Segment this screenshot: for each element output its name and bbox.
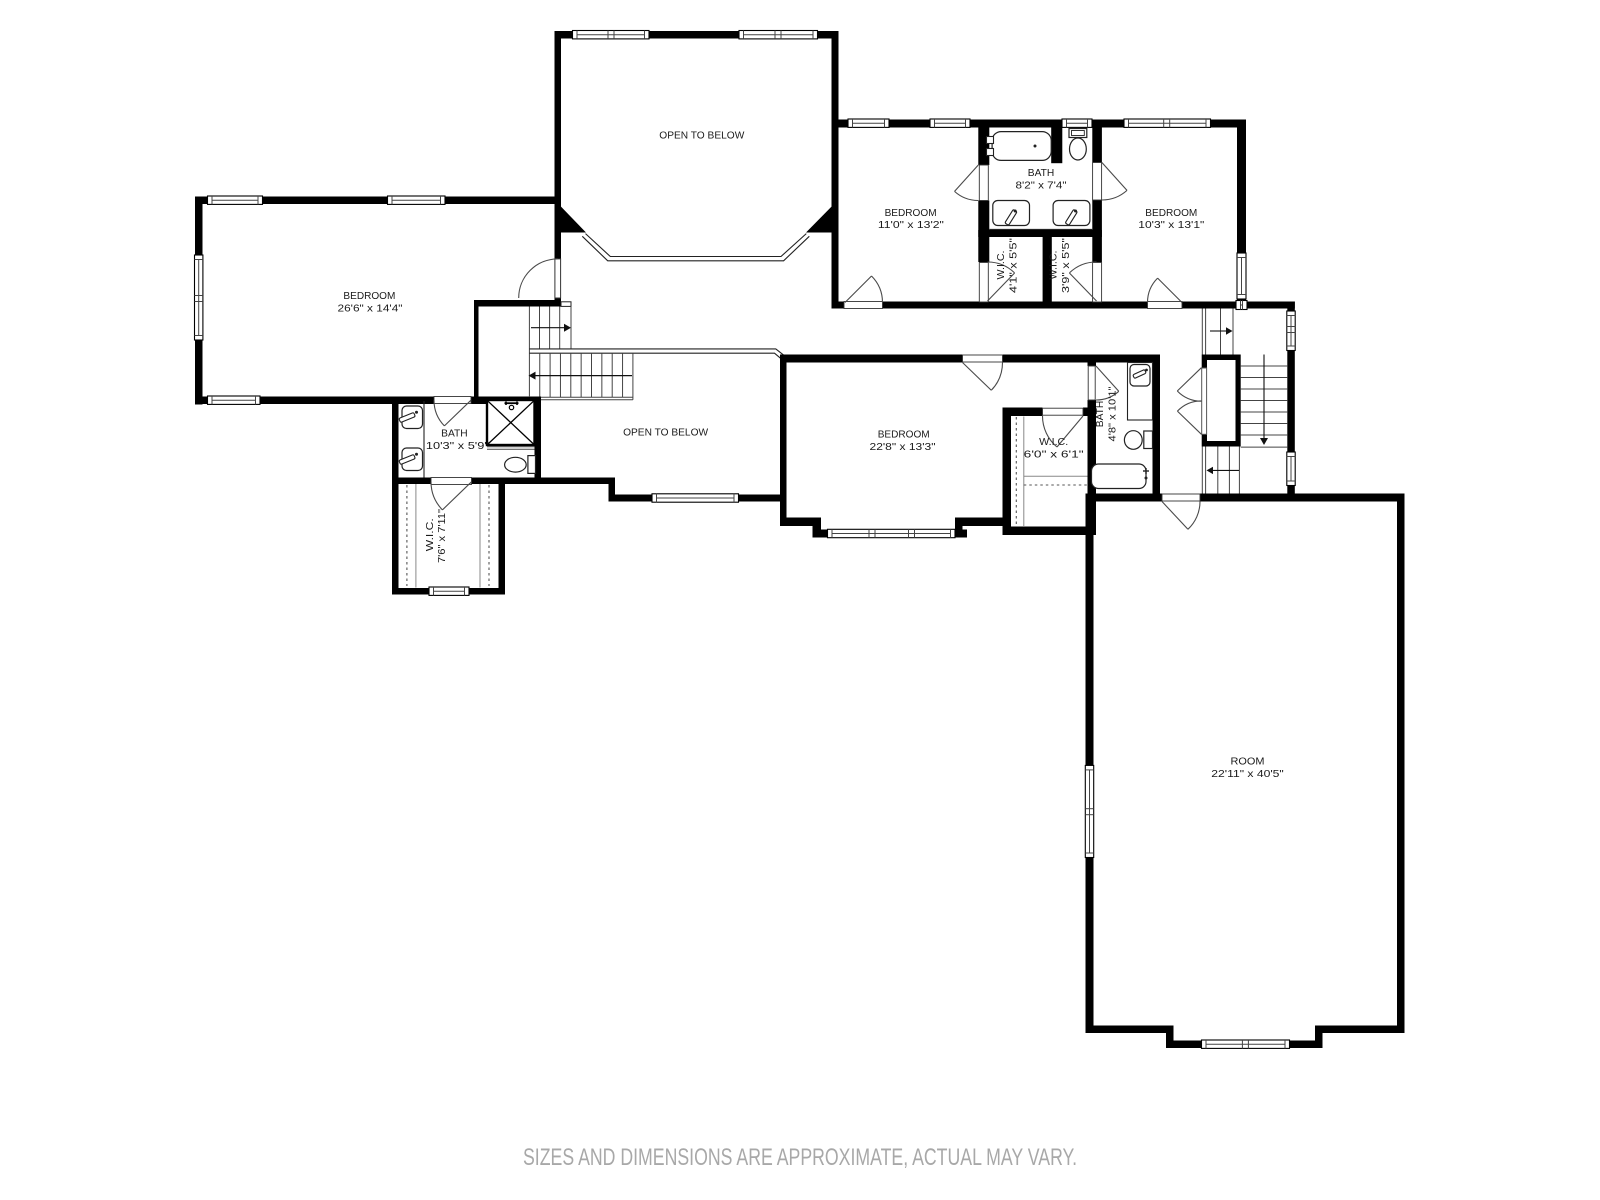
svg-text:10'3" x 5'9": 10'3" x 5'9" <box>426 440 489 452</box>
svg-text:26'6" x 14'4": 26'6" x 14'4" <box>338 302 403 314</box>
svg-text:W.I.C.: W.I.C. <box>1047 251 1059 280</box>
svg-text:BEDROOM: BEDROOM <box>878 429 930 441</box>
svg-text:8'2" x 7'4": 8'2" x 7'4" <box>1016 180 1067 192</box>
svg-text:22'11" x 40'5": 22'11" x 40'5" <box>1211 768 1284 780</box>
svg-text:4'8" x 10'1": 4'8" x 10'1" <box>1107 386 1119 441</box>
svg-text:BATH: BATH <box>1094 401 1106 428</box>
svg-text:W.I.C.: W.I.C. <box>1039 436 1068 448</box>
svg-text:10'3" x 13'1": 10'3" x 13'1" <box>1138 219 1204 231</box>
svg-text:OPEN TO BELOW: OPEN TO BELOW <box>623 427 708 439</box>
svg-text:BEDROOM: BEDROOM <box>343 290 395 302</box>
svg-text:4'1" x 5'5": 4'1" x 5'5" <box>1007 238 1019 293</box>
svg-text:BATH: BATH <box>1028 167 1055 179</box>
svg-text:W.I.C.: W.I.C. <box>995 251 1007 280</box>
svg-text:BEDROOM: BEDROOM <box>1145 207 1197 219</box>
svg-text:11'0" x 13'2": 11'0" x 13'2" <box>878 219 944 231</box>
svg-text:BEDROOM: BEDROOM <box>885 207 937 219</box>
svg-text:W.I.C.: W.I.C. <box>424 518 436 551</box>
svg-text:22'8" x 13'3": 22'8" x 13'3" <box>870 441 936 453</box>
svg-text:6'0" x 6'1": 6'0" x 6'1" <box>1024 449 1084 461</box>
svg-text:ROOM: ROOM <box>1231 756 1265 768</box>
svg-text:7'6" x 7'11": 7'6" x 7'11" <box>436 509 448 563</box>
svg-text:SIZES AND DIMENSIONS ARE APPRO: SIZES AND DIMENSIONS ARE APPROXIMATE, AC… <box>523 1144 1077 1171</box>
svg-text:OPEN TO BELOW: OPEN TO BELOW <box>659 130 744 142</box>
svg-text:3'9" x 5'5": 3'9" x 5'5" <box>1060 238 1072 293</box>
svg-text:BATH: BATH <box>441 428 468 440</box>
